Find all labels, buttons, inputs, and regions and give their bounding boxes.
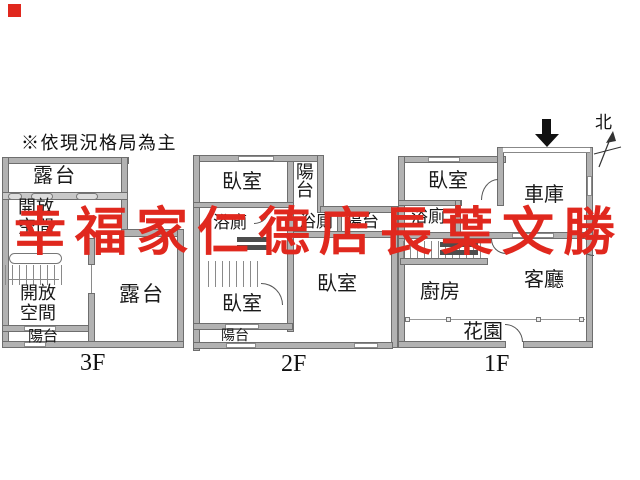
compass-arrowhead (606, 131, 616, 143)
window (587, 176, 592, 196)
wall (2, 157, 129, 164)
north-compass-icon: 北 (586, 104, 638, 176)
note-text: ※依現況格局為主 (21, 129, 177, 155)
stairs-2f (208, 261, 258, 287)
room-label-garage-1f: 車庫 (524, 185, 564, 206)
window (354, 343, 378, 348)
gate-door-arc (505, 324, 523, 342)
entrance-arrow-head-icon (535, 134, 559, 147)
floorplan-canvas: ※依現況格局為主 露台 開放 空間 開放 空間 露台 陽台 3F (0, 0, 640, 480)
floor-tag-3f: 3F (80, 350, 105, 377)
wall (88, 293, 95, 343)
room-label-bedroom-bottom-2f: 臥室 (222, 294, 262, 315)
stairs-3f (5, 265, 64, 285)
room-label-balcony-bottom-2f: 陽台 (221, 330, 249, 345)
window (238, 156, 274, 161)
watermark-text: 幸福家仁德店長葉文勝 (14, 208, 624, 260)
corner-red-mark (8, 4, 21, 17)
room-label-bedroom-main-2f: 臥室 (317, 274, 357, 295)
room-label-garden-1f: 花園 (463, 322, 503, 343)
fence-post (405, 317, 410, 322)
north-label: 北 (595, 113, 612, 132)
wall (497, 147, 504, 206)
fence-post (536, 317, 541, 322)
room-label-bedroom-1f: 臥室 (428, 171, 468, 192)
room-label-living-1f: 客廳 (524, 270, 564, 291)
door-arc (261, 283, 283, 305)
compass-crossbar (594, 147, 621, 154)
garden-fence-line (407, 319, 585, 320)
opening-line (91, 265, 92, 293)
room-label-terrace-main: 露台 (119, 283, 165, 305)
floor-tag-1f: 1F (484, 351, 509, 378)
wall (287, 161, 294, 203)
window (76, 193, 98, 200)
room-label-bedroom-top-2f: 臥室 (222, 172, 262, 193)
window (428, 157, 460, 162)
door-arc (481, 179, 498, 200)
room-label-open-space-2: 空間 (20, 304, 56, 323)
fence-post (579, 317, 584, 322)
wall (523, 341, 593, 348)
garage-door-line (503, 147, 590, 153)
room-label-balcony-3f: 陽台 (28, 330, 58, 346)
fence-post (446, 317, 451, 322)
floor-tag-2f: 2F (281, 351, 306, 378)
entrance-arrow-icon (542, 119, 551, 134)
room-label-terrace-top: 露台 (33, 166, 77, 187)
room-label-open-space-1: 開放 (20, 284, 56, 303)
stair-arrow-line (9, 279, 59, 280)
wall (2, 157, 9, 348)
room-label-kitchen-1f: 廚房 (420, 282, 460, 303)
